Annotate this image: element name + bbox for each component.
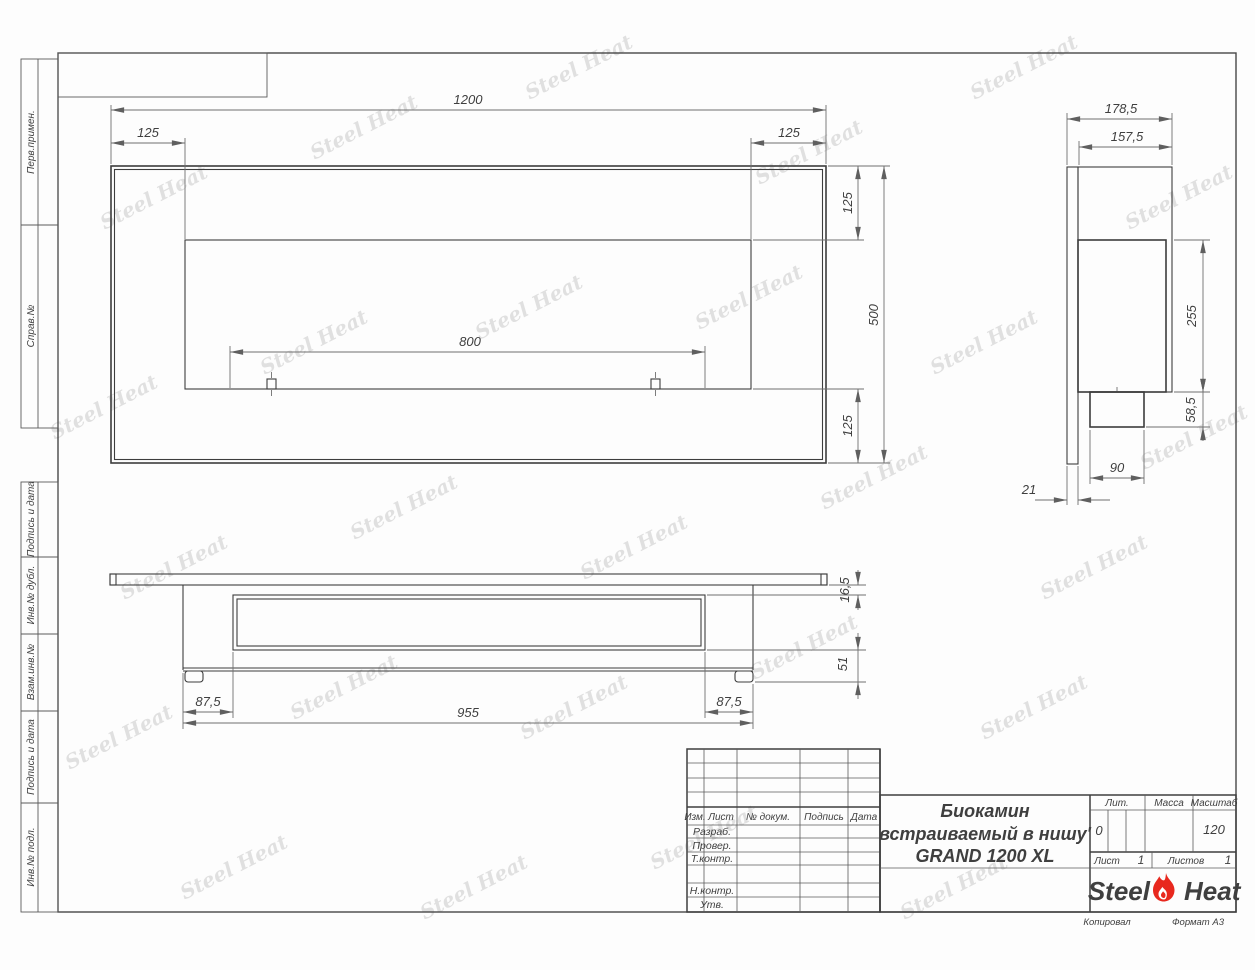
sheets-value: 1 [1225, 853, 1232, 867]
mass-label: Масса [1154, 798, 1184, 809]
doc-title-line3: GRAND 1200 XL [915, 846, 1054, 866]
dim-side-inner-height: 255 [1184, 304, 1199, 327]
side-view-dimensions: 178,5 157,5 255 58,5 90 [1021, 101, 1210, 505]
left-margin-strip: Перв.примен. Справ.№ Подпись и дата Инв.… [21, 59, 58, 912]
row-utv: Утв. [699, 899, 724, 911]
front-view-dimensions: 1200 125 125 800 125 500 [111, 92, 890, 463]
front-view [111, 166, 826, 463]
strip-label-inv-podl: Инв.№ подл. [26, 827, 37, 886]
col-izm: Изм. [684, 812, 705, 823]
strip-label-inv-dubl: Инв.№ дубл. [25, 566, 37, 625]
footer-format: Формат А3 [1172, 917, 1225, 928]
dim-side-flange-thickness: 21 [1021, 482, 1036, 497]
technical-drawing: Перв.примен. Справ.№ Подпись и дата Инв.… [0, 0, 1255, 970]
dim-bottom-body-width: 955 [457, 705, 479, 720]
title-block: Изм. Лист № докум. Подпись Дата Разраб. … [684, 749, 1241, 928]
footer-kopiroval: Копировал [1083, 917, 1131, 928]
scale-value: 120 [1203, 822, 1225, 837]
row-nkontr: Н.контр. [690, 885, 734, 897]
sheet-label: Лист [1093, 856, 1120, 867]
strip-label-podpis-data-1: Подпись и дата [26, 481, 37, 557]
row-razrab: Разраб. [693, 826, 731, 838]
dim-bottom-flange: 16,5 [837, 577, 852, 603]
dim-side-lower-height: 58,5 [1183, 397, 1198, 423]
logo-steel-text: Steel [1088, 876, 1151, 906]
logo-heat-text: Heat [1184, 876, 1242, 906]
dim-front-bottom-offset: 125 [840, 414, 855, 436]
strip-label-vzam-inv: Взам.инв.№ [26, 644, 37, 700]
dim-front-left-offset: 125 [137, 125, 159, 140]
dim-front-top-offset: 125 [840, 191, 855, 213]
sheet-value: 1 [1138, 853, 1145, 867]
col-date: Дата [850, 812, 878, 823]
dim-bottom-left-offset: 87,5 [195, 694, 221, 709]
strip-label-perv-primen: Перв.примен. [26, 110, 37, 174]
dim-front-opening: 800 [459, 334, 481, 349]
strip-label-sprav-no: Справ.№ [26, 304, 37, 347]
bottom-view [110, 574, 827, 682]
scale-label: Масштаб [1191, 797, 1238, 809]
drawing-frame [58, 53, 1236, 912]
lit-value: 0 [1095, 823, 1103, 838]
flame-icon [1153, 873, 1175, 902]
doc-title-line1: Биокамин [940, 801, 1029, 821]
col-list: Лист [707, 812, 734, 823]
strip-label-podpis-data-2: Подпись и дата [26, 719, 37, 795]
dim-side-lower-width: 90 [1110, 460, 1125, 475]
top-left-reference-box [58, 53, 267, 97]
sheets-label: Листов [1167, 856, 1204, 867]
dim-front-right-offset: 125 [778, 125, 800, 140]
dim-front-height: 500 [866, 303, 881, 325]
steelheat-logo: Steel Heat [1088, 873, 1242, 906]
drawing-sheet: Steel Heat Steel Heat Steel Heat Steel H… [0, 0, 1255, 970]
lit-label: Лит. [1104, 798, 1128, 809]
row-prover: Провер. [692, 840, 731, 852]
dim-bottom-right-offset: 87,5 [716, 694, 742, 709]
dim-front-width: 1200 [454, 92, 484, 107]
col-doc: № докум. [746, 812, 790, 823]
dim-bottom-depth: 51 [835, 657, 850, 671]
dim-side-depth-body: 157,5 [1111, 129, 1144, 144]
doc-title-line2: встраиваемый в нишу' [879, 824, 1092, 844]
side-view [1067, 167, 1172, 464]
row-tkontr: Т.контр. [691, 853, 733, 865]
col-sign: Подпись [804, 812, 844, 823]
dim-side-depth-total: 178,5 [1105, 101, 1138, 116]
